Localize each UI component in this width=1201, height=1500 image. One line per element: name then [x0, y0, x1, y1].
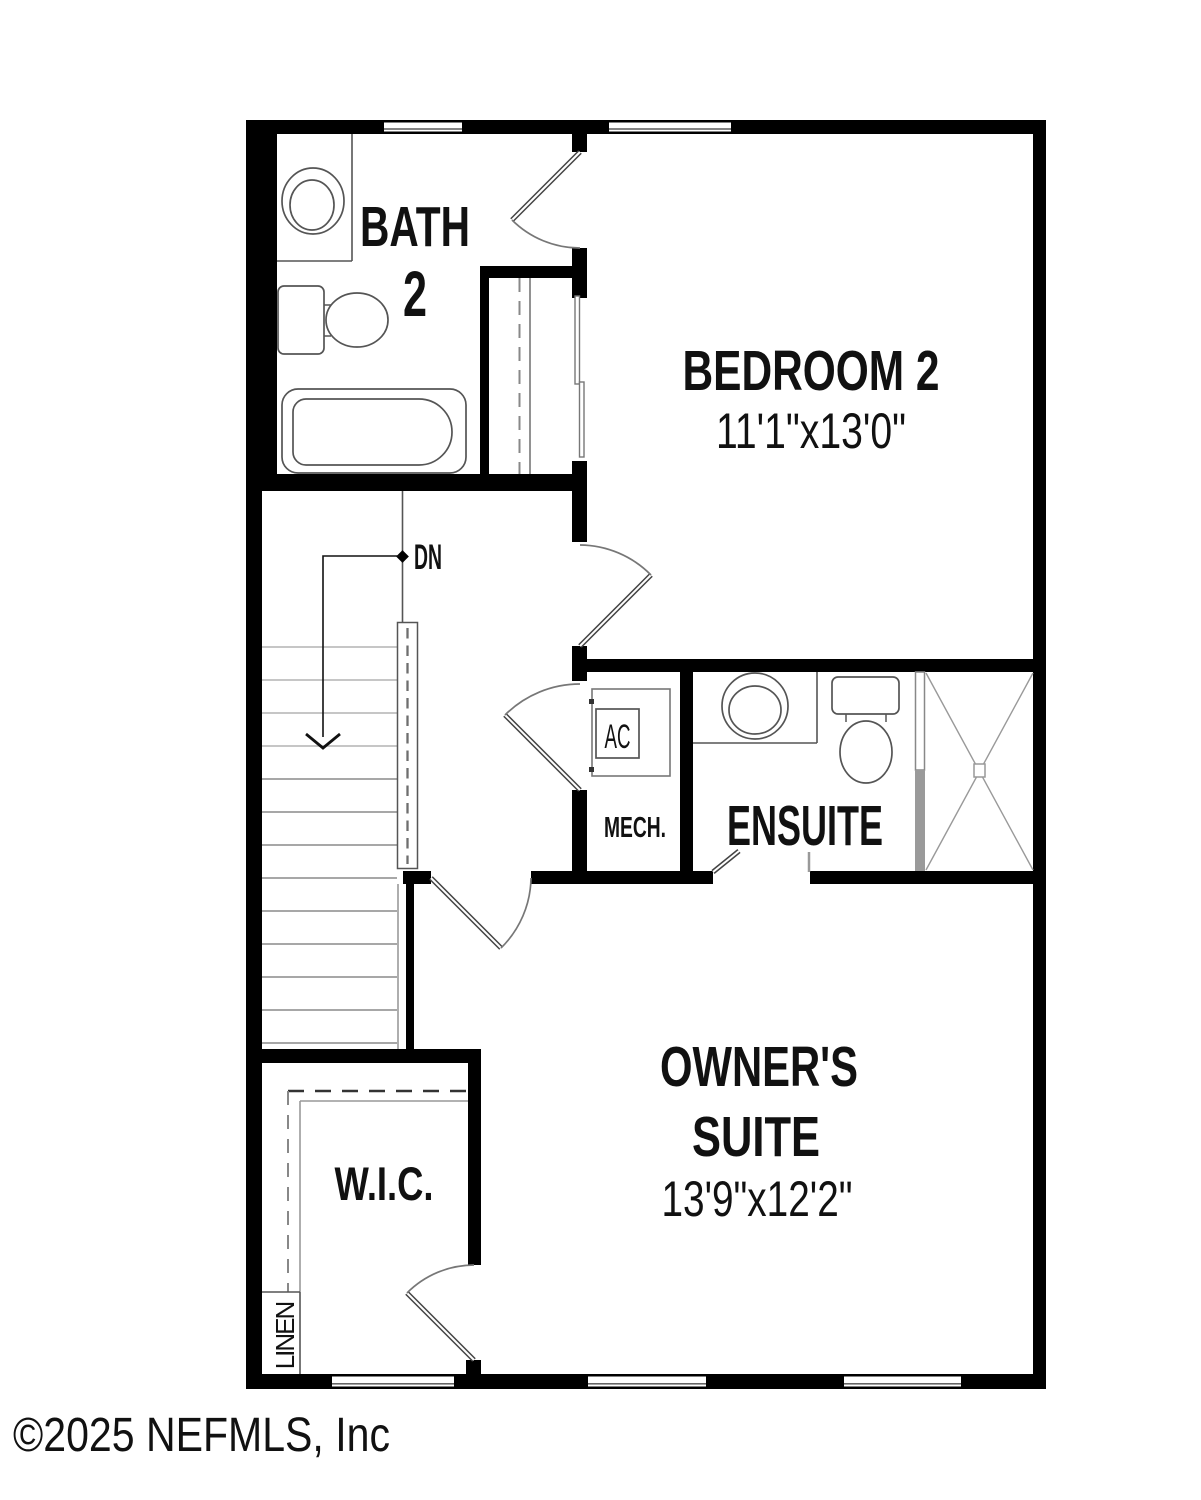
svg-text:BEDROOM 2: BEDROOM 2 — [683, 339, 940, 403]
svg-text:LINEN: LINEN — [270, 1302, 300, 1369]
svg-text:DN: DN — [414, 538, 442, 577]
svg-text:AC: AC — [605, 718, 631, 756]
svg-text:SUITE: SUITE — [692, 1105, 820, 1169]
svg-text:©2025 NEFMLS, Inc: ©2025 NEFMLS, Inc — [13, 1409, 390, 1462]
svg-text:2: 2 — [403, 258, 427, 330]
svg-text:13'9"x12'2": 13'9"x12'2" — [662, 1171, 853, 1227]
svg-text:W.I.C.: W.I.C. — [335, 1157, 434, 1210]
svg-text:11'1"x13'0": 11'1"x13'0" — [716, 403, 906, 459]
svg-text:ENSUITE: ENSUITE — [727, 794, 883, 858]
svg-text:OWNER'S: OWNER'S — [660, 1035, 858, 1099]
svg-text:BATH: BATH — [360, 195, 470, 259]
svg-text:MECH.: MECH. — [604, 812, 666, 844]
